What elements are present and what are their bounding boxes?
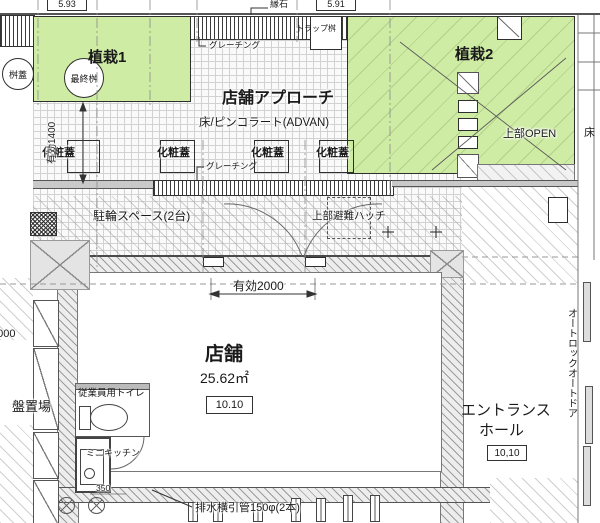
- louver-panel: [33, 300, 59, 347]
- entrance-code-box: 10,10: [487, 445, 527, 461]
- planting2-area: [347, 16, 575, 174]
- door-leaf: [305, 257, 326, 267]
- planting2-step-box: [457, 72, 479, 94]
- planting2-step-box: [458, 100, 478, 113]
- wall-step-box: [548, 197, 568, 223]
- pipe-symbol: [343, 495, 353, 522]
- planting1-label: 植栽1: [88, 50, 126, 66]
- bike-space-label: 駐輪スペース(2台): [93, 210, 190, 223]
- auto-door-label: オートロックオートドア: [565, 308, 576, 418]
- louver-panel: [33, 348, 59, 430]
- elevation-box-left: 5.93: [47, 0, 87, 11]
- store-interior: [77, 272, 442, 472]
- planting2-label: 植栽2: [455, 47, 493, 63]
- column: [30, 240, 90, 290]
- corner-box: [497, 16, 522, 40]
- store-label: 店舗: [205, 345, 243, 365]
- approach-title: 店舗アプローチ: [222, 91, 334, 108]
- curb-label: 縁石: [270, 0, 288, 9]
- grating-band-left: [0, 15, 35, 47]
- store-right-wall: [440, 272, 464, 523]
- dim-approach-depth: 有効1400: [48, 122, 59, 164]
- auto-door-panel: [583, 446, 591, 506]
- auto-door-panel: [583, 282, 591, 342]
- drain-note: 排水横引管150φ(2本): [195, 503, 300, 515]
- hall-floor-hatch: [490, 478, 578, 523]
- bike-area-overhang-hatch: [33, 196, 462, 258]
- approach-floor-note: 床/ピンコラート(ADVAN): [199, 117, 329, 129]
- basin-symbol: [88, 497, 105, 514]
- open-above-label: 上部OPEN: [503, 129, 556, 141]
- outside-hatch: [0, 425, 33, 523]
- store-bottom-wall: [57, 487, 490, 503]
- staff-toilet-label: 従業員用トイレ: [78, 389, 145, 399]
- pipe-symbol: [316, 498, 326, 522]
- dim-kitchen-width: 350: [96, 484, 110, 493]
- store-code: 10.10: [216, 399, 244, 411]
- entrance-hall-label-2: ホール: [479, 423, 524, 439]
- elevation-left: 5.93: [58, 0, 76, 9]
- wall-segment: [33, 180, 153, 189]
- door-leaf: [203, 257, 224, 267]
- masu-cover-label: 桝蓋: [9, 68, 27, 81]
- final-masu-label: 最終桝: [70, 72, 97, 85]
- floor-plan: 桝蓋 最終桝: [0, 0, 600, 523]
- louver-panel: [33, 432, 59, 479]
- basin-symbol: [58, 497, 75, 514]
- floor-right-label: 床: [584, 128, 595, 140]
- planting2-step-box: [457, 154, 479, 178]
- panel-yard-label: 盤置場: [12, 400, 51, 414]
- sink-drain: [84, 468, 95, 479]
- cover-label-2: 化粧蓋: [157, 148, 190, 160]
- elevation-right: 5.91: [327, 0, 345, 9]
- hall-top-wall: [392, 180, 578, 187]
- dim-left-width: 2000: [0, 329, 15, 341]
- pipe-symbol: [370, 495, 380, 522]
- planting2-step-box: [458, 118, 478, 131]
- grating-band-mid: [153, 180, 394, 196]
- trap-masu-label: トラップ桝: [296, 25, 336, 33]
- store-area-label: 25.62㎡: [200, 371, 249, 386]
- entrance-code: 10,10: [494, 448, 519, 459]
- mini-kitchen-label: ミニキッチン: [86, 449, 140, 458]
- elevation-box-right: 5.91: [316, 0, 356, 11]
- planting2-bottom-hatch: [477, 164, 575, 181]
- cover-label-4: 化粧蓋: [316, 148, 349, 160]
- grating-label-2: グレーチング: [206, 162, 257, 171]
- store-code-box: 10.10: [206, 396, 253, 414]
- cover-label-3: 化粧蓋: [251, 148, 284, 160]
- entrance-hall-label-1: エントランス: [461, 403, 551, 419]
- planting2-step-box: [458, 136, 478, 149]
- dim-door-width: 有効2000: [233, 280, 284, 293]
- louver-panel: [33, 480, 59, 523]
- escape-hatch-label: 上部避難ハッチ: [312, 211, 386, 222]
- auto-door-panel: [585, 386, 593, 444]
- pit-crosshatch: [30, 212, 57, 236]
- masu-cover-circle: 桝蓋: [2, 58, 34, 90]
- toilet-bowl: [90, 404, 128, 431]
- hall-overhang-hatch: [462, 180, 578, 283]
- grating-label-1: グレーチング: [209, 41, 260, 50]
